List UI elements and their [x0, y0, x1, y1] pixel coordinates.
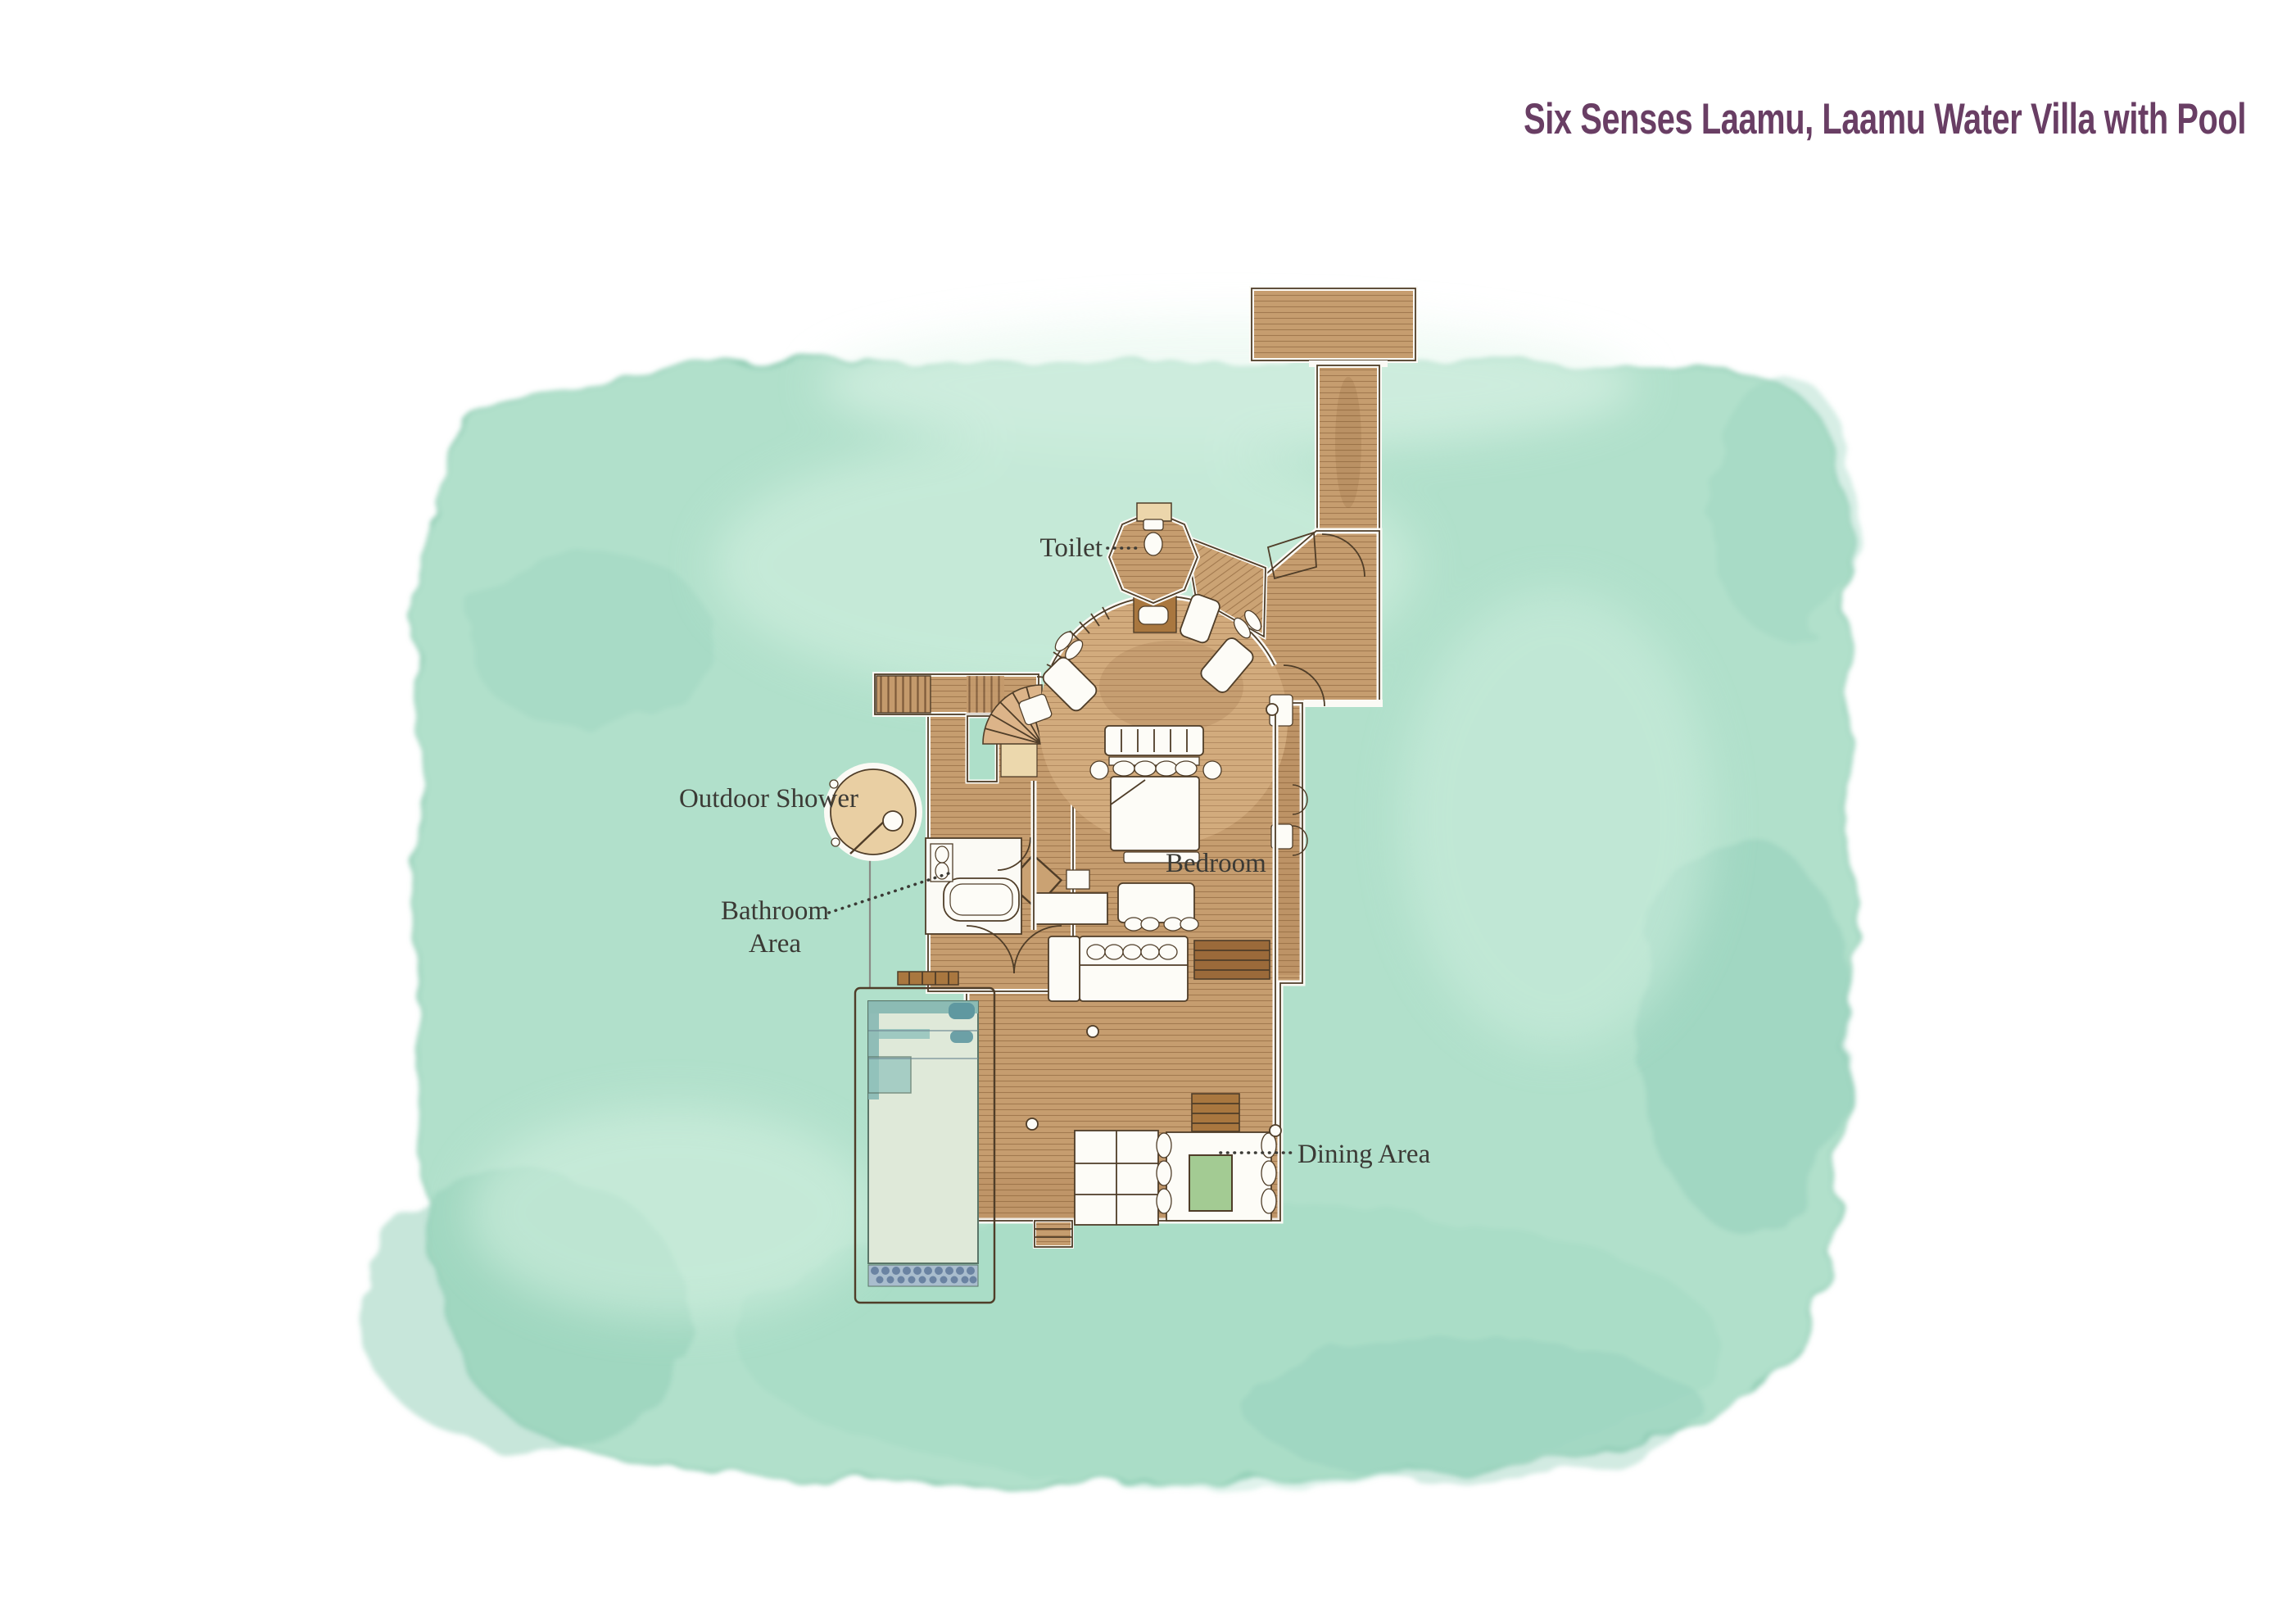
- bed: [1109, 757, 1199, 863]
- jetty-walkway: [1317, 365, 1379, 539]
- side-table-left: [1090, 761, 1108, 779]
- toilet-basin: [1139, 606, 1168, 624]
- pool-steps: [868, 1057, 911, 1093]
- woven-mat: [1194, 941, 1270, 979]
- plunge-pool: [855, 988, 994, 1303]
- side-table-right: [1203, 761, 1221, 779]
- sofa-end: [1048, 936, 1080, 1001]
- label-toilet: Toilet: [1039, 533, 1103, 563]
- pebble-strip: [868, 1265, 978, 1286]
- toilet-fixture: [1143, 519, 1163, 555]
- label-bathroom-line1: Bathroom: [721, 896, 829, 926]
- bathroom: [926, 838, 1021, 934]
- jetty-t-platform: [1252, 288, 1415, 367]
- label-bedroom: Bedroom: [1166, 849, 1266, 878]
- pool-bench: [898, 972, 958, 985]
- page-title: Six Senses Laamu, Laamu Water Villa with…: [1524, 94, 2246, 143]
- floorplan-page: Toilet Outdoor Shower Bathroom Area Bedr…: [0, 0, 2296, 1623]
- cabinet: [1034, 893, 1107, 924]
- sectional-sofa: [1080, 936, 1188, 1001]
- shower-head: [883, 811, 903, 831]
- toilet-pod-top-block: [1137, 503, 1171, 521]
- floorplan-illustration: Toilet Outdoor Shower Bathroom Area Bedr…: [0, 0, 2296, 1623]
- loveseat: [1118, 883, 1198, 931]
- bathtub: [944, 878, 1019, 921]
- side-table-square: [1066, 870, 1089, 889]
- label-outdoor-shower: Outdoor Shower: [679, 784, 858, 814]
- label-dining-area: Dining Area: [1297, 1140, 1431, 1169]
- dining-table: [1189, 1155, 1232, 1211]
- daybed: [1075, 1131, 1158, 1225]
- dining-steps-block: [1192, 1094, 1239, 1131]
- water-steps: [1035, 1221, 1072, 1247]
- label-bathroom-line2: Area: [749, 929, 801, 959]
